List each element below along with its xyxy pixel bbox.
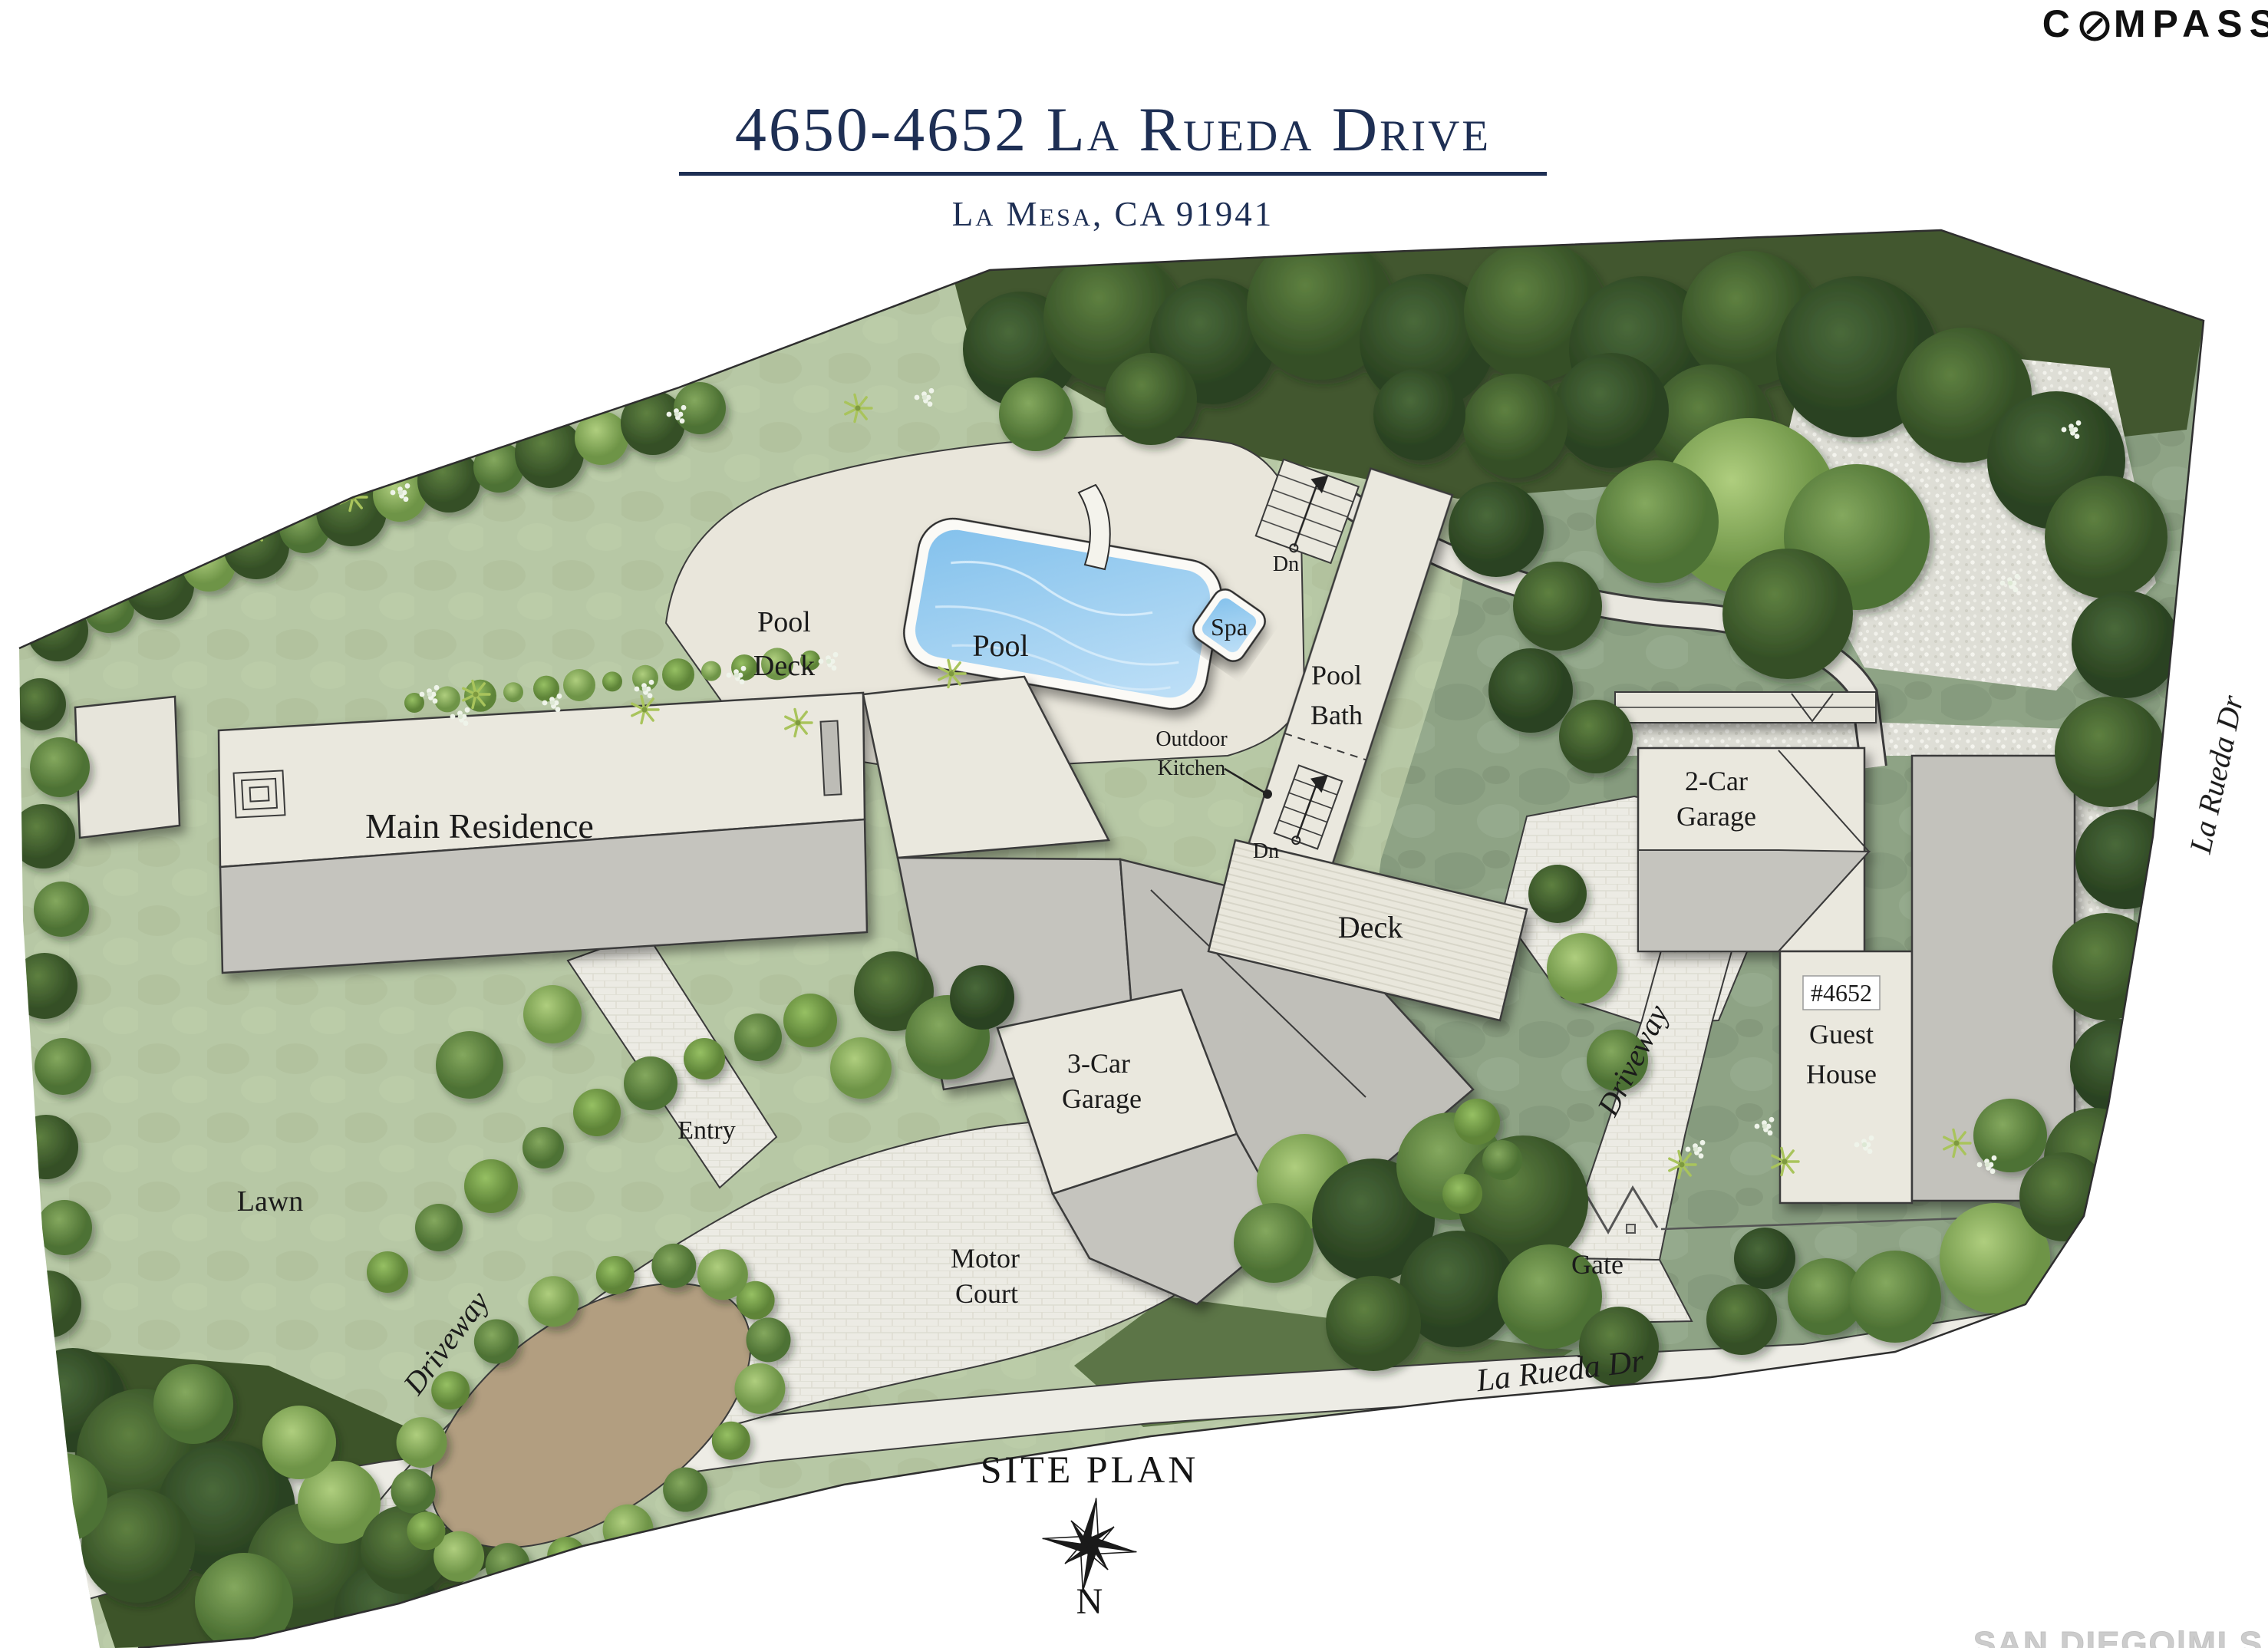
site-plan-caption: SITE PLAN [905,1447,1274,1491]
site-plan-page: CMPASS 4650-4652 La Rueda Drive La Mesa,… [0,0,2268,1648]
site-plan-rendering: Main Residence PoolDeck Pool Spa Dn Pool… [0,0,2268,1648]
label-dn-lower: Dn [1253,839,1279,863]
label-spa: Spa [1211,613,1248,641]
parcel-grounds [0,215,2268,1648]
label-pool: Pool [972,628,1028,663]
label-deck: Deck [1338,910,1403,944]
svg-text:Guest: Guest [1809,1019,1874,1050]
svg-text:#4652: #4652 [1811,979,1872,1007]
label-street-right: La Rueda Dr [2183,692,2250,857]
mls-watermark: SAN DIEGO|MLS [1973,1625,2263,1648]
label-lawn: Lawn [237,1185,304,1218]
label-entry: Entry [677,1116,736,1145]
label-gate: Gate [1571,1249,1624,1280]
label-dn-upper: Dn [1273,552,1299,576]
chimney [821,720,842,795]
label-guest-house: #4652 Guest House [1803,976,1880,1089]
label-main-residence: Main Residence [365,806,594,845]
west-porch [75,697,180,838]
svg-text:House: House [1806,1059,1877,1089]
north-label: N [1051,1580,1128,1623]
